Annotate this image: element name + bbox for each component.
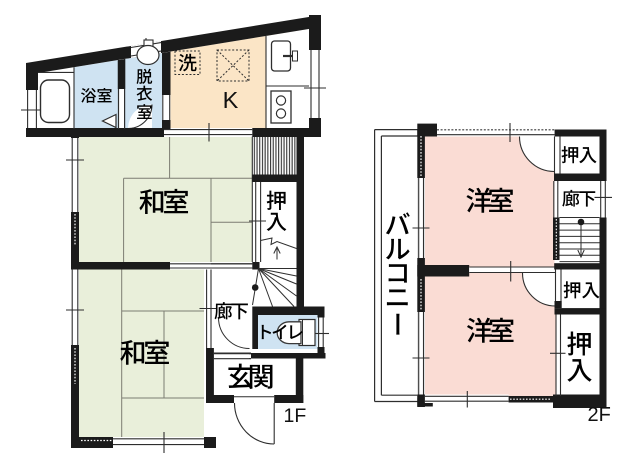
svg-text:2F: 2F	[588, 404, 611, 426]
svg-text:1F: 1F	[284, 405, 307, 427]
svg-text:K: K	[223, 87, 239, 113]
